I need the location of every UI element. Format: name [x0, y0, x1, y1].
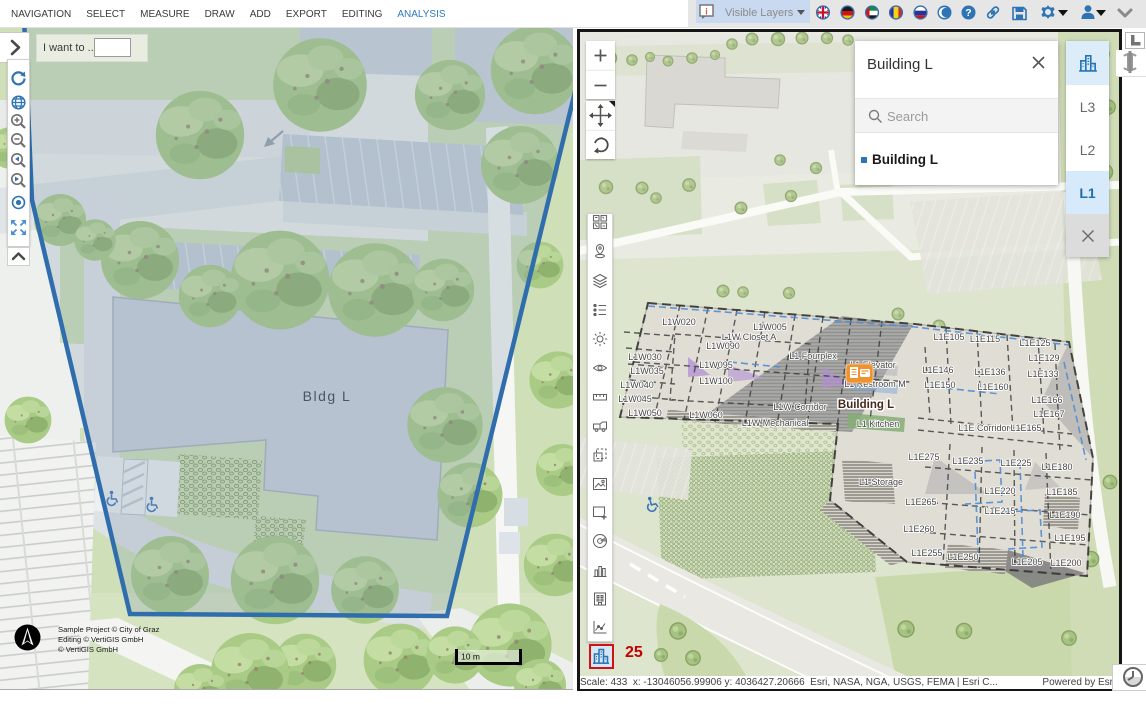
- svg-text:L1E166: L1E166: [1031, 395, 1062, 405]
- svg-text:L1W090: L1W090: [706, 341, 740, 351]
- svg-text:L1E225: L1E225: [1000, 458, 1031, 468]
- svg-text:L1E146: L1E146: [922, 365, 953, 375]
- svg-text:Building L: Building L: [838, 399, 894, 411]
- svg-text:L1E129: L1E129: [1028, 353, 1059, 363]
- svg-text:L1E185: L1E185: [1046, 487, 1077, 497]
- svg-text:L1W035: L1W035: [630, 366, 664, 376]
- svg-text:L1E133: L1E133: [1027, 369, 1058, 379]
- svg-text:L1W005: L1W005: [753, 322, 787, 332]
- svg-text:L1E167: L1E167: [1033, 409, 1064, 419]
- svg-text:L1E150: L1E150: [924, 380, 955, 390]
- svg-text:L1E Corridor: L1E Corridor: [958, 423, 1009, 433]
- svg-text:L1E275: L1E275: [908, 452, 939, 462]
- svg-text:L1E200: L1E200: [1050, 558, 1081, 568]
- svg-text:10 m: 10 m: [461, 652, 480, 662]
- svg-text:L1E180: L1E180: [1041, 462, 1072, 472]
- svg-text:L1W050: L1W050: [628, 408, 662, 418]
- svg-text:L1W095: L1W095: [699, 360, 733, 370]
- svg-text:?: ?: [965, 7, 971, 19]
- svg-text:L1E165: L1E165: [1010, 423, 1041, 433]
- svg-text:L1E160: L1E160: [977, 382, 1008, 392]
- svg-text:L1E215: L1E215: [984, 506, 1015, 516]
- svg-text:L1E125: L1E125: [1019, 338, 1050, 348]
- svg-text:L1E195: L1E195: [1054, 533, 1085, 543]
- svg-text:i: i: [705, 7, 708, 17]
- svg-text:L1W020: L1W020: [662, 317, 696, 327]
- svg-text:L1E136: L1E136: [974, 367, 1005, 377]
- svg-text:L1W Mechanical: L1W Mechanical: [742, 418, 809, 428]
- svg-text:L1E260: L1E260: [903, 524, 934, 534]
- svg-text:L1E115: L1E115: [970, 334, 1000, 344]
- svg-text:L1W040: L1W040: [620, 380, 654, 390]
- svg-text:L1W030: L1W030: [628, 352, 662, 362]
- svg-text:L1E220: L1E220: [984, 486, 1015, 496]
- svg-text:L1E190: L1E190: [1049, 510, 1080, 520]
- svg-text:L1W100: L1W100: [699, 376, 733, 386]
- svg-text:L1E265: L1E265: [905, 497, 936, 507]
- svg-text:L1 Kitchen: L1 Kitchen: [857, 419, 900, 429]
- svg-text:L1 Fourplex: L1 Fourplex: [789, 351, 837, 361]
- svg-text:L1E105: L1E105: [933, 332, 964, 342]
- svg-text:L1 Storage: L1 Storage: [859, 477, 903, 487]
- svg-text:L1E255: L1E255: [911, 548, 942, 558]
- svg-text:L1W Corridor: L1W Corridor: [773, 402, 827, 412]
- svg-text:L1E205: L1E205: [1011, 557, 1042, 567]
- svg-text:L1W045: L1W045: [618, 394, 652, 404]
- svg-text:L1E250: L1E250: [947, 552, 978, 562]
- svg-text:L1E235: L1E235: [952, 456, 983, 466]
- svg-text:L1W060: L1W060: [689, 410, 723, 420]
